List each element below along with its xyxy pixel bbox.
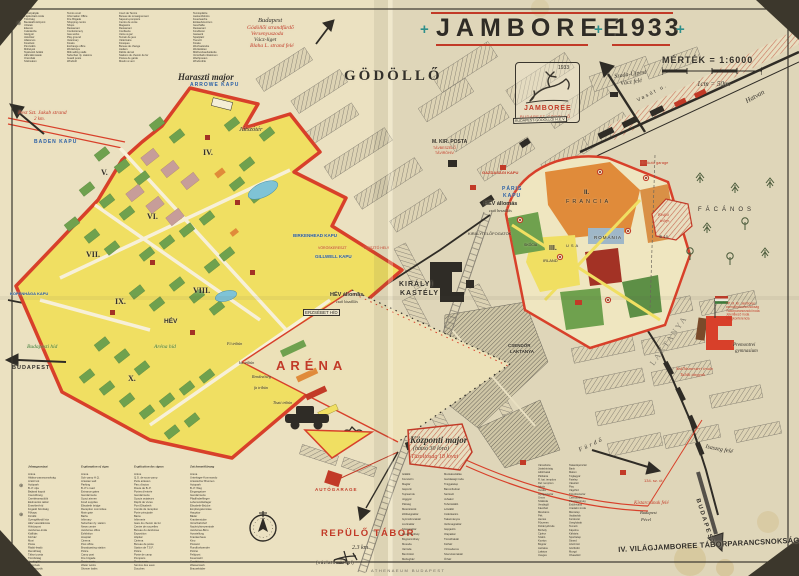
scale-label: MÉRTÉK = 1:6000 — [662, 55, 753, 65]
tribune-2: kis tribün — [239, 360, 254, 365]
royal-carriages: KIRÁLYI ELŐFOGATOK — [468, 231, 511, 236]
szallas-2: Talált tárgyak — [680, 372, 705, 377]
gate-gazdasagi: GAZDASÁGI KAPU — [482, 170, 518, 175]
tribune-4: fa tribün — [254, 385, 268, 390]
list-item: Douches — [134, 568, 190, 572]
scale-bar — [662, 67, 762, 75]
kozponti-major-label: Központi major — [410, 435, 467, 445]
legend-bottom-symbol-1: ⊛ — [19, 483, 23, 489]
szallas-1: Szállásmesteri iroda — [676, 366, 713, 371]
dir-kistarcsa-sub2: Pécel — [641, 517, 651, 522]
list-right-col1: VárosházaJárásbíróságAdóhivatalPlébániaR… — [538, 464, 569, 558]
hev-exit-note: csak kiszállás — [336, 299, 358, 304]
title-overline — [431, 12, 673, 14]
printer-imprint: ATHENAEUM BUDAPEST — [371, 568, 446, 573]
arena-label: ARÉNA — [276, 358, 347, 373]
kisfiu-label-2: telep. — [660, 218, 670, 223]
gate-paris-1: PÁRIS — [502, 186, 522, 192]
red-cross-label: VÖRÖSKERESZT — [318, 246, 347, 250]
legend-bottom-hu: ArénaAltábor-parancsnokságArtézi kútAutó… — [28, 473, 81, 571]
region-vi: VI. — [147, 212, 158, 221]
marker-10: ⊛ 10. — [659, 234, 669, 239]
dir-szada-2: Vácz felé — [620, 78, 642, 87]
kisfiu-label-1: Kisfiú — [658, 212, 669, 217]
gate-baden: BADEN KAPU — [34, 139, 77, 145]
list-item: Brausebäder — [190, 568, 235, 572]
hev-exit-station: HÉV állomás — [330, 292, 363, 298]
labels-layer: + JAMBOREE + 1933 + MÉRTÉK = 1:6000 1cm … — [0, 0, 799, 576]
legend-top-de: TennisplätzeAuskunftsbüroFeuerwacheEinka… — [193, 12, 223, 63]
legend-header-de: Zeichenerklärung — [190, 465, 235, 469]
dir-kistarcsa: Kistarcsának felé — [634, 501, 669, 506]
title-underline-1 — [436, 44, 588, 46]
logo-name: JAMBOREE — [524, 105, 572, 112]
stag-icon — [516, 71, 579, 105]
gate-birkenhead: BIRKENHEAD KAPU — [293, 233, 337, 238]
kozponti-sub: (hátsó 30 lóra) — [413, 446, 449, 452]
legend-header-hu: Jelmagyarázat — [28, 465, 81, 469]
legend-top-hu: TeniszpályákTájékoztató irodaTűzőrségBev… — [24, 12, 67, 63]
tp-hq-text: TP. M. kir. Jamboreecsendőrparancsnokság… — [726, 302, 791, 321]
gate-arrowe: ARROWE KAPU — [190, 82, 239, 88]
dir-jakab-km: 2 km. — [34, 117, 45, 122]
region-viii: VIII. — [193, 286, 210, 295]
legend-top-symbol: ⊛ — [17, 21, 21, 27]
camp-france-num: II. — [584, 190, 589, 196]
dir-kistarcsa-sub1: Budapest — [640, 510, 657, 515]
dir-isaszeg: Isaszeg felé — [705, 444, 733, 455]
region-vii: VII. — [86, 250, 100, 259]
repulo-km: 2.3 km — [352, 545, 368, 551]
hev-label: HÉV — [164, 318, 177, 325]
barracks-big-label: LAKTANYA — [648, 314, 689, 367]
camp-skocia-label: SKÓCIA — [524, 243, 537, 247]
region-x: X. — [128, 374, 136, 383]
street-vasut: Vasút u. — [636, 83, 669, 104]
legend-bottom-symbol-2: ⊕ — [19, 512, 23, 518]
dir-jakab: Pest Szt. Jakab strand — [18, 110, 67, 116]
post-red-1: TÁVBESZÉLŐ — [433, 146, 456, 150]
list-item: Shower baths — [81, 568, 134, 572]
list-item: Világkonferencia — [726, 317, 791, 321]
playground-label: Játszótér — [239, 126, 262, 133]
castle-label-2: KASTÉLY — [400, 290, 439, 297]
title-year: 1933 — [614, 14, 682, 43]
title-plus-left: + — [420, 21, 429, 38]
list-item: Mérlegház — [402, 557, 444, 562]
tp-garage-label: TP. Autó garage — [640, 160, 668, 165]
list-item: Szélmalom — [24, 60, 67, 63]
town-name: GÖDÖLLŐ — [344, 68, 443, 85]
gendarme-barracks-1: CSENDŐR — [508, 343, 531, 348]
kioszto-label: KIOSZTÓ HELY — [364, 246, 389, 250]
gate-kopenhaga: KOPENHÁGA KAPU — [10, 291, 48, 296]
autogarage-label: AUTÓGARAGE — [315, 487, 358, 492]
gate-gillwell: GILLWELL KAPU — [315, 254, 352, 259]
gate-paris-2: KAPU — [503, 193, 521, 199]
dir-hatvan: Hatvan — [744, 88, 766, 105]
legend-bottom-headers: Jelmagyarázat Explanation of signs Expli… — [28, 465, 263, 469]
tribune-1: Fő tribün — [227, 341, 242, 346]
budapest-bridge: Budapesti híd — [27, 344, 57, 350]
title-underline-2 — [612, 44, 670, 46]
pheasantry-label: FÁCÁNOS — [698, 207, 755, 213]
title-plus-right: + — [676, 21, 685, 38]
region-ix: IX. — [115, 297, 126, 306]
dir-budapest: Budapest — [258, 17, 282, 24]
legend-header-fr: Explication des signes — [134, 465, 190, 469]
legend-bottom: ArénaAltábor-parancsnokságArtézi kútAutó… — [28, 473, 263, 571]
legend-bottom-de: ArenaUnterlager-KommandoArtesischer Brun… — [190, 473, 235, 571]
region-v: V. — [101, 168, 108, 177]
repulo-note: (vázlaton kívül) — [316, 560, 354, 565]
camp-usa-label: USA — [566, 243, 580, 248]
castle-label-1: KIRÁLYI — [399, 281, 433, 288]
legend-top-en: Tennis courtInformation OfficeFire Briga… — [67, 12, 119, 63]
legend-top-fr: Court de TennisBureau de renseignementSa… — [119, 12, 193, 63]
camp-three-num: III. — [549, 245, 557, 252]
road-134: 134. sz. út — [644, 478, 662, 483]
legend-bottom-fr: ArèneQ.G. de sous-campPuits artésienParc… — [134, 473, 190, 571]
legend-top: TeniszpályákTájékoztató irodaTűzőrségBev… — [24, 12, 224, 63]
list-item: Windmill — [67, 60, 119, 63]
camp-three-label: IRLAND — [543, 258, 558, 263]
title-plus-mid: + — [594, 21, 603, 38]
legend-header-en: Explanation of signs — [81, 465, 134, 469]
list-item: Windmühle — [193, 60, 223, 63]
list-right-col2: TakarékpénztárBankMalomTéglagyárFatelepV… — [569, 464, 600, 558]
camp-romania-label: ROMÁNIA — [594, 235, 622, 240]
haraszti-major: Haraszti major — [178, 72, 234, 82]
scale-note: 1cm = 50m. — [697, 80, 731, 88]
list-center-col2: MunkásszállásGazdasági irodaTrágyatelepB… — [444, 472, 486, 562]
hev-entry-note: csak beszállás — [489, 208, 512, 213]
hev-entry-station: HÉV állomás — [484, 201, 517, 207]
street-furdo: Fürdő — [578, 436, 605, 453]
list-item: Zuhanyozók — [28, 568, 81, 572]
camp-france-label: FRANCIA — [566, 199, 611, 205]
list-center-col1: IstállókKocsiszínMagtárGépszínTejcsarnok… — [402, 472, 444, 562]
gendarme-barracks-2: LAKTANYA — [510, 349, 534, 354]
list-center: IstállókKocsiszínMagtárGépszínTejcsarnok… — [402, 472, 487, 562]
tribune-5: Tiszti tribün — [273, 400, 292, 405]
legend-bottom-en: ArenaSub-camp H.Q.Artesian wellParkingB.… — [81, 473, 134, 571]
dir-blaha: Blaha L. strand felé — [250, 43, 294, 49]
scanned-jamboree-map: + JAMBOREE + 1933 + MÉRTÉK = 1:6000 1cm … — [0, 0, 799, 576]
repulo-tabor-label: REPÜLŐ TÁBOR — [321, 528, 415, 539]
gimnazium-1: Premontrei — [733, 343, 755, 348]
erzsebet-bridge: ERZSÉBET HÍD — [303, 309, 340, 316]
list-item: Üveges — [538, 554, 569, 558]
kozponti-fire: Tüzoltóság 18 lovai — [411, 454, 458, 460]
list-item: Moulin à vent — [119, 60, 193, 63]
list-item: Őrház — [444, 557, 486, 562]
list-right: VárosházaJárásbíróságAdóhivatalPlébániaR… — [538, 464, 600, 558]
region-iv: IV. — [203, 148, 213, 157]
gimnazium-2: gymnasium — [735, 349, 758, 354]
post-office: M. KIR. POSTA — [432, 139, 467, 145]
tribune-3: Rendezőség — [252, 374, 271, 379]
list-item: Olvasókör — [569, 554, 600, 558]
budapest-left-label: BUDAPEST — [12, 365, 50, 371]
post-red-2: TÁVIRÓHIV. — [435, 151, 455, 155]
arena-bridge: Aréna híd — [154, 344, 176, 350]
jamboree-logo: 1933 JAMBOREE BUDAPEST-GÖDÖLLŐ — [515, 62, 580, 123]
